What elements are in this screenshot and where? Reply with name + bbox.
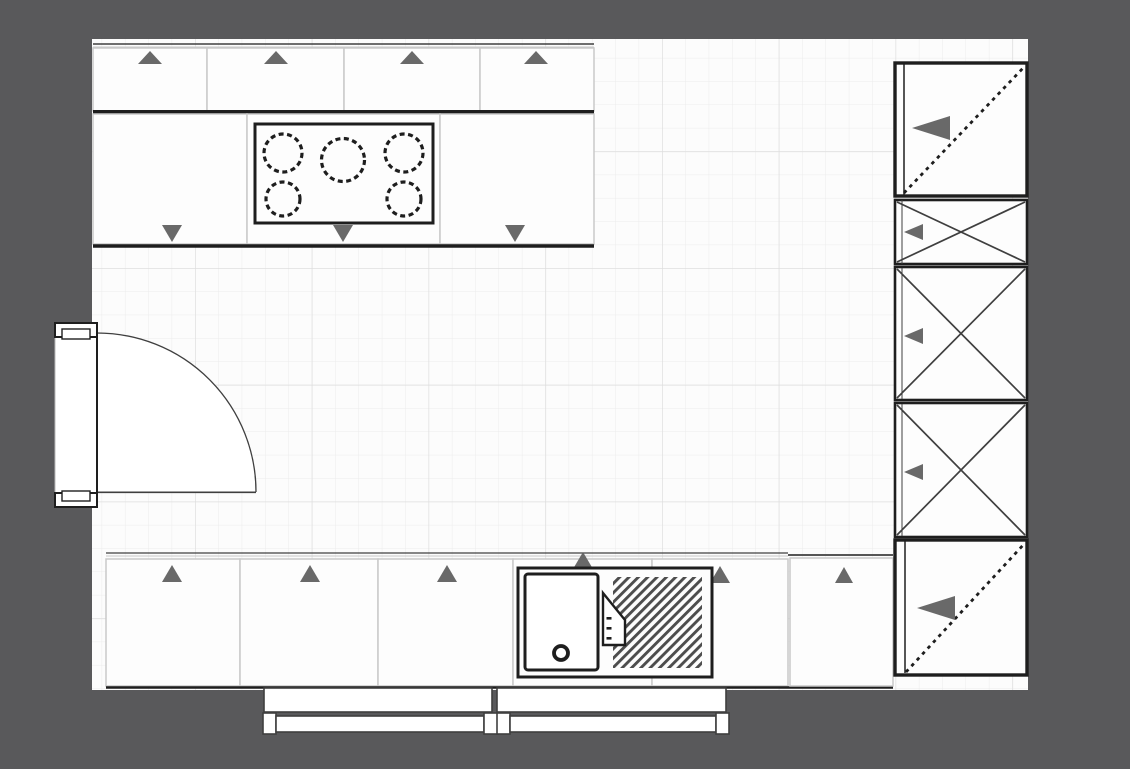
faucet-detail-2 <box>607 627 612 630</box>
faucet-detail-1 <box>607 617 612 620</box>
faucet-detail-3 <box>607 637 612 640</box>
door-jamb-bottom-notch <box>62 491 90 501</box>
tall-cabinet-1[interactable] <box>895 63 1027 196</box>
window-2-cap-left <box>497 713 510 734</box>
window-1-sill <box>276 716 484 732</box>
door-jamb-top-notch <box>62 329 90 339</box>
sink-drain <box>554 646 568 660</box>
cooktop-body[interactable] <box>255 124 433 223</box>
window-2-sill <box>510 716 716 732</box>
kitchen-floor-plan <box>0 0 1130 769</box>
window-1-cap-left <box>263 713 276 734</box>
window-1-opening[interactable] <box>264 688 492 712</box>
kitchen-planner-canvas <box>0 0 1130 769</box>
tall-cabinet-5[interactable] <box>895 540 1027 675</box>
door-opening <box>55 323 97 507</box>
base-cabinet-top-1[interactable] <box>93 114 247 244</box>
drainboard-hatch <box>613 577 702 668</box>
window-2-cap-right <box>716 713 729 734</box>
window-1-cap-right <box>484 713 498 734</box>
base-cabinet-top-3[interactable] <box>440 114 594 244</box>
window-2-opening[interactable] <box>497 688 726 712</box>
